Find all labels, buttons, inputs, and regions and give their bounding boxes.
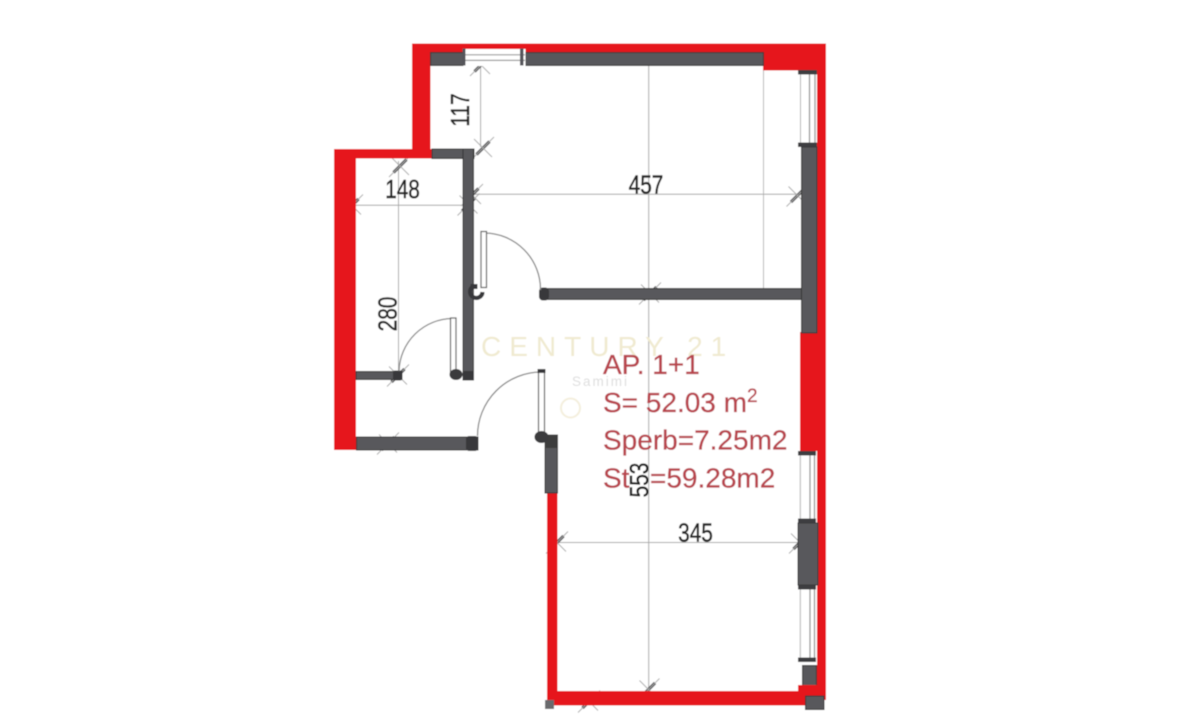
svg-text:345: 345 <box>678 519 713 547</box>
svg-text:S= 52.03 m2: S= 52.03 m2 <box>603 386 758 418</box>
svg-text:148: 148 <box>385 175 420 203</box>
svg-text:457: 457 <box>629 171 664 199</box>
svg-text:280: 280 <box>374 297 402 332</box>
svg-text:AP. 1+1: AP. 1+1 <box>603 349 700 380</box>
svg-text:Sperb=7.25m2: Sperb=7.25m2 <box>603 425 787 456</box>
svg-text:=59.28m2: =59.28m2 <box>650 463 775 494</box>
svg-text:553: 553 <box>625 463 653 498</box>
svg-text:117: 117 <box>446 93 474 126</box>
